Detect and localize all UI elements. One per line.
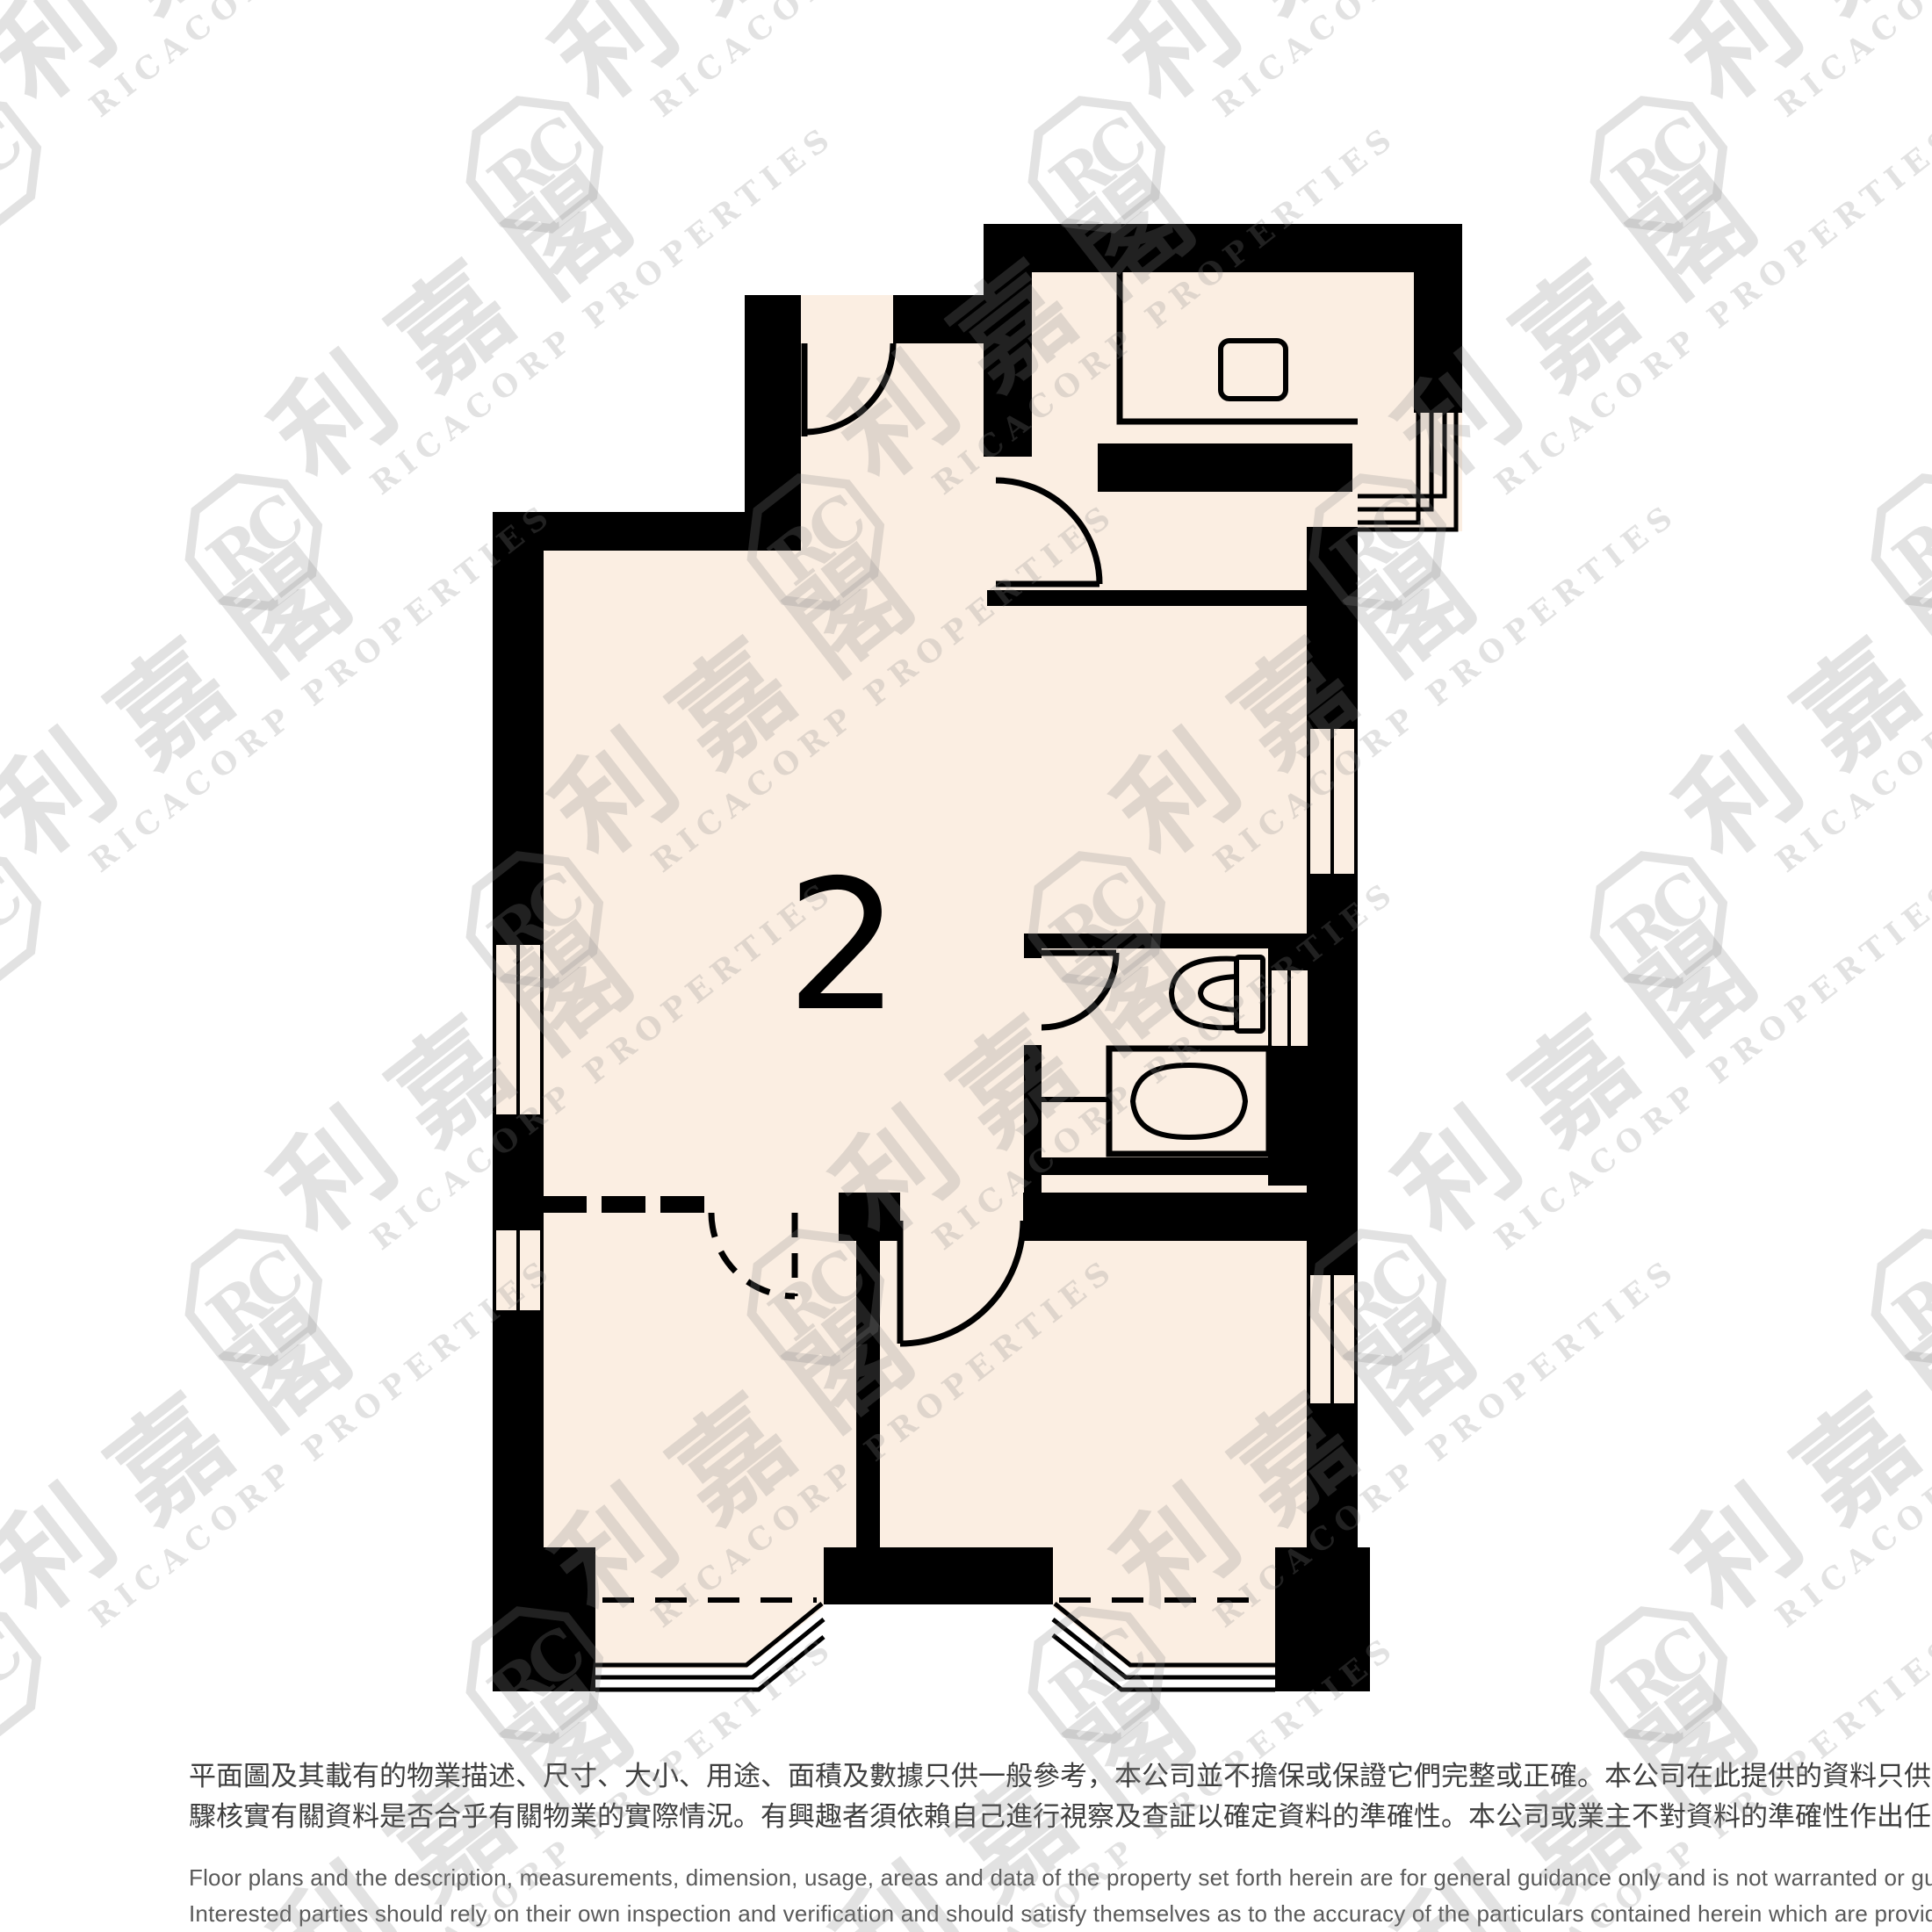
- bathroom-right-wall: [1311, 969, 1358, 1048]
- window-left-2: [494, 1229, 542, 1312]
- kitchen-right-wall: [1414, 224, 1462, 413]
- partition-dash: [602, 1196, 645, 1213]
- left-bottom-block: [493, 1547, 595, 1691]
- disclaimer-en-line1: Floor plans and the description, measure…: [189, 1860, 1770, 1896]
- bedroom-wall-stub: [839, 1193, 900, 1241]
- kitchen-sink: [1221, 341, 1286, 399]
- floor-plan: 2: [0, 0, 1932, 1932]
- unit-number-label: 2: [786, 842, 900, 1051]
- window-right-1: [1308, 727, 1356, 876]
- window-bathroom: [1270, 969, 1309, 1048]
- window-left-1: [494, 943, 542, 1116]
- bedroom-top-wall: [1023, 1193, 1358, 1241]
- partition-stub: [544, 1196, 587, 1213]
- center-bottom-wall: [824, 1547, 1053, 1604]
- floor-plan-page: 2 RC利嘉閣RICACORP PROPERTIESRC利嘉閣RICACORP …: [0, 0, 1932, 1932]
- disclaimer-en: Floor plans and the description, measure…: [189, 1860, 1770, 1932]
- bathtub: [1109, 1049, 1269, 1154]
- left-wall: [493, 1116, 544, 1229]
- disclaimer: 平面圖及其載有的物業描述、尺寸、大小、用途、面積及數據只供一般參考，本公司並不擔…: [189, 1756, 1770, 1932]
- main-floor: [493, 519, 1358, 1547]
- kitchen-bottom-wall: [1098, 443, 1352, 492]
- right-bottom-block: [1275, 1547, 1370, 1691]
- bathroom-bottom-wall: [1035, 1157, 1308, 1175]
- kitchen-left-wall: [984, 224, 1032, 457]
- left-wall: [493, 551, 544, 943]
- bedroom-divider-wall: [856, 1241, 880, 1547]
- entry-top-wall: [893, 295, 984, 343]
- left-step-wall: [493, 512, 801, 551]
- corridor-wall: [987, 590, 1307, 606]
- bay-left-floor: [595, 1547, 824, 1669]
- partition-dash: [660, 1196, 704, 1213]
- right-wall: [1307, 527, 1358, 727]
- bay-right-floor: [1053, 1547, 1275, 1669]
- disclaimer-zh-line1: 平面圖及其載有的物業描述、尺寸、大小、用途、面積及數據只供一般參考，本公司並不擔…: [189, 1756, 1770, 1797]
- left-wall: [493, 1312, 544, 1547]
- window-right-2: [1308, 1273, 1356, 1405]
- disclaimer-en-line2: Interested parties should rely on their …: [189, 1896, 1770, 1932]
- bathroom-top-wall: [1024, 934, 1268, 948]
- right-wall: [1307, 1405, 1358, 1547]
- bathroom-right-wall: [1268, 934, 1358, 969]
- disclaimer-zh-line2: 驟核實有關資料是否合乎有關物業的實際情況。有興趣者須依賴自己進行視察及查証以確定…: [189, 1797, 1770, 1837]
- kitchen-top-wall: [984, 224, 1462, 272]
